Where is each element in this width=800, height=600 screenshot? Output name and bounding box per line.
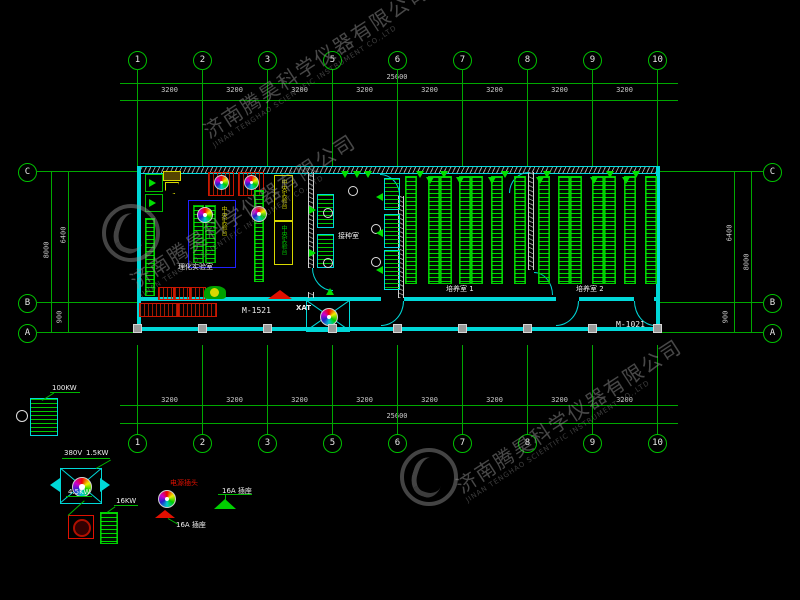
right-dim-inner-top: 6400 <box>725 225 733 242</box>
right-dim-line-inner <box>734 171 735 332</box>
grid-bubble-col-top: 8 <box>518 51 537 70</box>
bay-dim-top: 3200 <box>156 86 184 94</box>
grid-line-top <box>397 69 398 166</box>
grid-bubble-col-top: 3 <box>258 51 277 70</box>
cabinet-glyph <box>149 199 156 207</box>
grid-line-bottom <box>267 345 268 434</box>
grid-bubble-row-c-left: C <box>18 163 37 182</box>
wall-column <box>393 324 402 333</box>
leader-line <box>50 392 80 393</box>
side-bench <box>254 190 264 282</box>
legend-ahu-symbol <box>30 398 58 436</box>
bay-dim-bottom: 3200 <box>416 396 444 404</box>
grid-bubble-col-top: 9 <box>583 51 602 70</box>
diffuser-icon <box>309 249 316 257</box>
fan-inlet-cone <box>50 478 60 492</box>
cabinet-glyph <box>149 179 156 187</box>
ceiling-lamp-icon <box>323 258 333 268</box>
grid-bubble-col-bottom: 9 <box>583 434 602 453</box>
grid-bubble-col-bottom: 10 <box>648 434 667 453</box>
row-line-b-right <box>660 302 763 303</box>
bay-dim-bottom: 3200 <box>286 396 314 404</box>
fan-outlet-cone <box>100 478 110 492</box>
grid-bubble-col-bottom: 3 <box>258 434 277 453</box>
wall-column <box>133 324 142 333</box>
cabinet-icon <box>145 194 163 212</box>
door-arc <box>381 301 404 326</box>
bay-dim-top: 3200 <box>416 86 444 94</box>
grid-line-top <box>527 69 528 166</box>
grid-line-bottom <box>332 345 333 434</box>
grid-bubble-row-c-right: C <box>763 163 782 182</box>
under-bench-unit <box>158 287 174 300</box>
left-dim-line-inner <box>68 171 69 332</box>
grid-bubble-col-bottom: 6 <box>388 434 407 453</box>
diffuser-icon <box>353 171 361 178</box>
watermark: 济南腾昊科学仪器有限公司 JINAN TENGHAO SCIENTIFIC IN… <box>450 331 690 504</box>
diffuser-icon <box>632 171 640 178</box>
room-label-inoculation: 接种室 <box>338 231 359 241</box>
wall-column <box>653 324 662 333</box>
legend-socket-label-1: 16A 插座 <box>176 520 206 530</box>
grid-bubble-col-bottom: 8 <box>518 434 537 453</box>
grid-bubble-row-b-right: B <box>763 294 782 313</box>
room-label-growing-1: 培养室 1 <box>446 284 474 294</box>
ceiling-lamp-icon <box>348 186 358 196</box>
rack-strip <box>570 176 582 284</box>
room-label-growing-2: 培养室 2 <box>576 284 604 294</box>
clean-bench-icon <box>384 178 400 210</box>
diffuser-icon <box>364 171 372 178</box>
watermark-logo-icon <box>400 448 458 506</box>
rack-strip <box>645 176 657 284</box>
diffuser-icon <box>376 266 383 274</box>
rack-strip <box>558 176 570 284</box>
wall-bench-upper: 中央实验台 <box>274 175 293 221</box>
legend-plug-label: 电源插头 <box>170 478 198 488</box>
row-line-a-left <box>36 332 137 333</box>
grid-bubble-col-top: 2 <box>193 51 212 70</box>
diffuser-icon <box>309 206 316 214</box>
grid-bubble-col-top: 5 <box>323 51 342 70</box>
heater-coil <box>73 519 91 537</box>
bay-dim-bottom: 3200 <box>221 396 249 404</box>
grid-line-bottom <box>202 345 203 434</box>
rack-strip <box>514 176 526 284</box>
grid-bubble-col-top: 6 <box>388 51 407 70</box>
red-triangle-icon <box>268 290 292 299</box>
island-bench-label: 中央实验台 <box>220 206 226 236</box>
grid-line-bottom <box>462 345 463 434</box>
row-line-c-right <box>660 171 763 172</box>
legend-fan-power: 1.5KW <box>86 449 108 457</box>
cabinet-icon <box>145 174 163 192</box>
wall-column <box>588 324 597 333</box>
wall-bench-label: 中央实验台 <box>280 225 286 255</box>
legend-fan-voltage: 380V <box>64 449 82 457</box>
red-annotation-block <box>178 303 217 317</box>
grid-bubble-col-bottom: 1 <box>128 434 147 453</box>
bottom-dim-line-1 <box>120 405 678 406</box>
bay-dim-top: 3200 <box>221 86 249 94</box>
top-dim-line-1 <box>120 83 678 84</box>
cad-floor-plan: 25600 25600 C B A 8000 6400 900 C B A 64… <box>0 0 800 600</box>
trolley-icon <box>204 286 226 299</box>
rack-strip <box>491 176 503 284</box>
wall-column <box>458 324 467 333</box>
diffuser-icon <box>376 229 383 237</box>
internal-wall-1-lower <box>308 292 314 298</box>
grid-line-top <box>202 69 203 166</box>
diffuser-icon <box>606 171 614 178</box>
right-dim-inner-bottom: 900 <box>721 311 729 324</box>
wall-bench-lower: 中央实验台 <box>274 221 293 265</box>
grid-bubble-row-b-left: B <box>18 294 37 313</box>
rack-strip <box>405 176 417 284</box>
diffuser-icon <box>456 177 464 184</box>
rack-strip <box>538 176 550 284</box>
bay-dim-top: 3200 <box>286 86 314 94</box>
rack-strip <box>440 176 452 284</box>
grid-line-bottom <box>527 345 528 434</box>
bay-dim-bottom: 3200 <box>481 396 509 404</box>
clean-bench-icon <box>384 250 400 290</box>
diffuser-icon <box>440 171 448 178</box>
grid-line-top <box>462 69 463 166</box>
bay-dim-bottom: 3200 <box>156 396 184 404</box>
grid-bubble-col-bottom: 7 <box>453 434 472 453</box>
bay-dim-top: 3200 <box>481 86 509 94</box>
watermark-cn: 济南腾昊科学仪器有限公司 <box>452 334 686 498</box>
fume-hood-icon <box>208 172 234 196</box>
grid-bubble-col-bottom: 2 <box>193 434 212 453</box>
rack-strip <box>604 176 616 284</box>
diffuser-icon <box>326 288 334 295</box>
legend-rack-symbol <box>100 512 118 544</box>
grid-bubble-col-top: 7 <box>453 51 472 70</box>
legend-plug-symbol <box>158 490 176 508</box>
rack-strip <box>624 176 636 284</box>
grid-line-top <box>267 69 268 166</box>
legend-ahu-port <box>16 410 28 422</box>
grid-bubble-col-top: 10 <box>648 51 667 70</box>
diffuser-icon <box>416 171 424 178</box>
bay-dim-bottom: 3200 <box>351 396 379 404</box>
wall-column <box>328 324 337 333</box>
leader-line <box>66 496 92 497</box>
door-mark-2: M-1021 <box>616 320 645 329</box>
trolley-wheel <box>210 288 219 297</box>
grid-line-top <box>137 69 138 166</box>
fan-wheel-icon <box>244 175 259 190</box>
rack-strip <box>428 176 440 284</box>
grid-line-top <box>657 69 658 166</box>
yellow-wedge-icon <box>165 182 179 194</box>
fan-wheel-icon <box>251 206 267 222</box>
door-mark-1: M-1521 <box>242 306 271 315</box>
grid-line-bottom <box>657 345 658 434</box>
island-bench: 中央实验台 <box>188 200 236 268</box>
right-dim-line-outer <box>751 171 752 332</box>
red-annotation-block <box>139 303 178 317</box>
bottom-dim-line-2 <box>120 423 678 424</box>
rack-strip <box>592 176 604 284</box>
legend-rack-power: 16KW <box>116 497 136 505</box>
ceiling-lamp-icon <box>323 208 333 218</box>
grid-bubble-row-a-left: A <box>18 324 37 343</box>
watermark-cn: 济南腾昊科学仪器有限公司 <box>199 0 433 143</box>
row-line-a-right <box>660 332 763 333</box>
legend-ahu-power: 100KW <box>52 384 77 392</box>
bay-dim-top: 3200 <box>546 86 574 94</box>
legend-heater-symbol <box>68 515 94 539</box>
bay-dim-top: 3200 <box>351 86 379 94</box>
diffuser-icon <box>622 177 630 184</box>
bay-dim-bottom: 3200 <box>546 396 574 404</box>
leader-line <box>114 505 138 506</box>
wall-column <box>263 324 272 333</box>
side-bench <box>145 218 155 296</box>
wall-bench-label: 中央实验台 <box>280 179 286 209</box>
diffuser-icon <box>501 171 509 178</box>
fan-wheel-icon <box>214 175 229 190</box>
bay-dim-top: 3200 <box>611 86 639 94</box>
legend-socket-symbol-green <box>214 499 236 509</box>
wall-column <box>198 324 207 333</box>
left-dim-line-outer <box>51 171 52 332</box>
fan-wheel-icon <box>197 207 213 223</box>
diffuser-icon <box>376 193 383 201</box>
grid-line-bottom <box>397 345 398 434</box>
fan-mark: XAT <box>296 304 311 312</box>
diffuser-icon <box>536 177 544 184</box>
grid-line-bottom <box>137 345 138 434</box>
right-dim-outer: 8000 <box>742 254 750 271</box>
diffuser-icon <box>341 171 349 178</box>
wall-column <box>523 324 532 333</box>
left-dim-outer: 8000 <box>42 242 50 259</box>
grid-bubble-col-top: 1 <box>128 51 147 70</box>
legend-socket-symbol-red <box>155 510 175 518</box>
under-bench-unit <box>174 287 190 300</box>
mau-unit-icon <box>163 171 181 181</box>
left-dim-inner-bottom: 900 <box>55 311 63 324</box>
grid-line-top <box>592 69 593 166</box>
clean-bench-icon <box>384 214 400 248</box>
bay-dim-bottom: 3200 <box>611 396 639 404</box>
door-arc <box>556 301 579 326</box>
grid-bubble-row-a-right: A <box>763 324 782 343</box>
diffuser-icon <box>543 171 551 178</box>
room-label-lab: 理化实验室 <box>178 262 213 272</box>
diffuser-icon <box>426 177 434 184</box>
rack-strip <box>459 176 471 284</box>
diffuser-icon <box>590 177 598 184</box>
diffuser-icon <box>488 177 496 184</box>
legend-heater-power: 4.5KW <box>68 488 90 496</box>
left-dim-inner-top: 6400 <box>59 227 67 244</box>
leader-line <box>96 460 111 469</box>
rack-strip <box>471 176 483 284</box>
leader-line <box>62 458 110 459</box>
legend-socket-label-2: 16A 插座 <box>222 486 252 496</box>
legend-fan-symbol <box>60 468 102 504</box>
grid-line-top <box>332 69 333 166</box>
top-dim-line-2 <box>120 100 678 101</box>
grid-line-bottom <box>592 345 593 434</box>
grid-bubble-col-bottom: 5 <box>323 434 342 453</box>
